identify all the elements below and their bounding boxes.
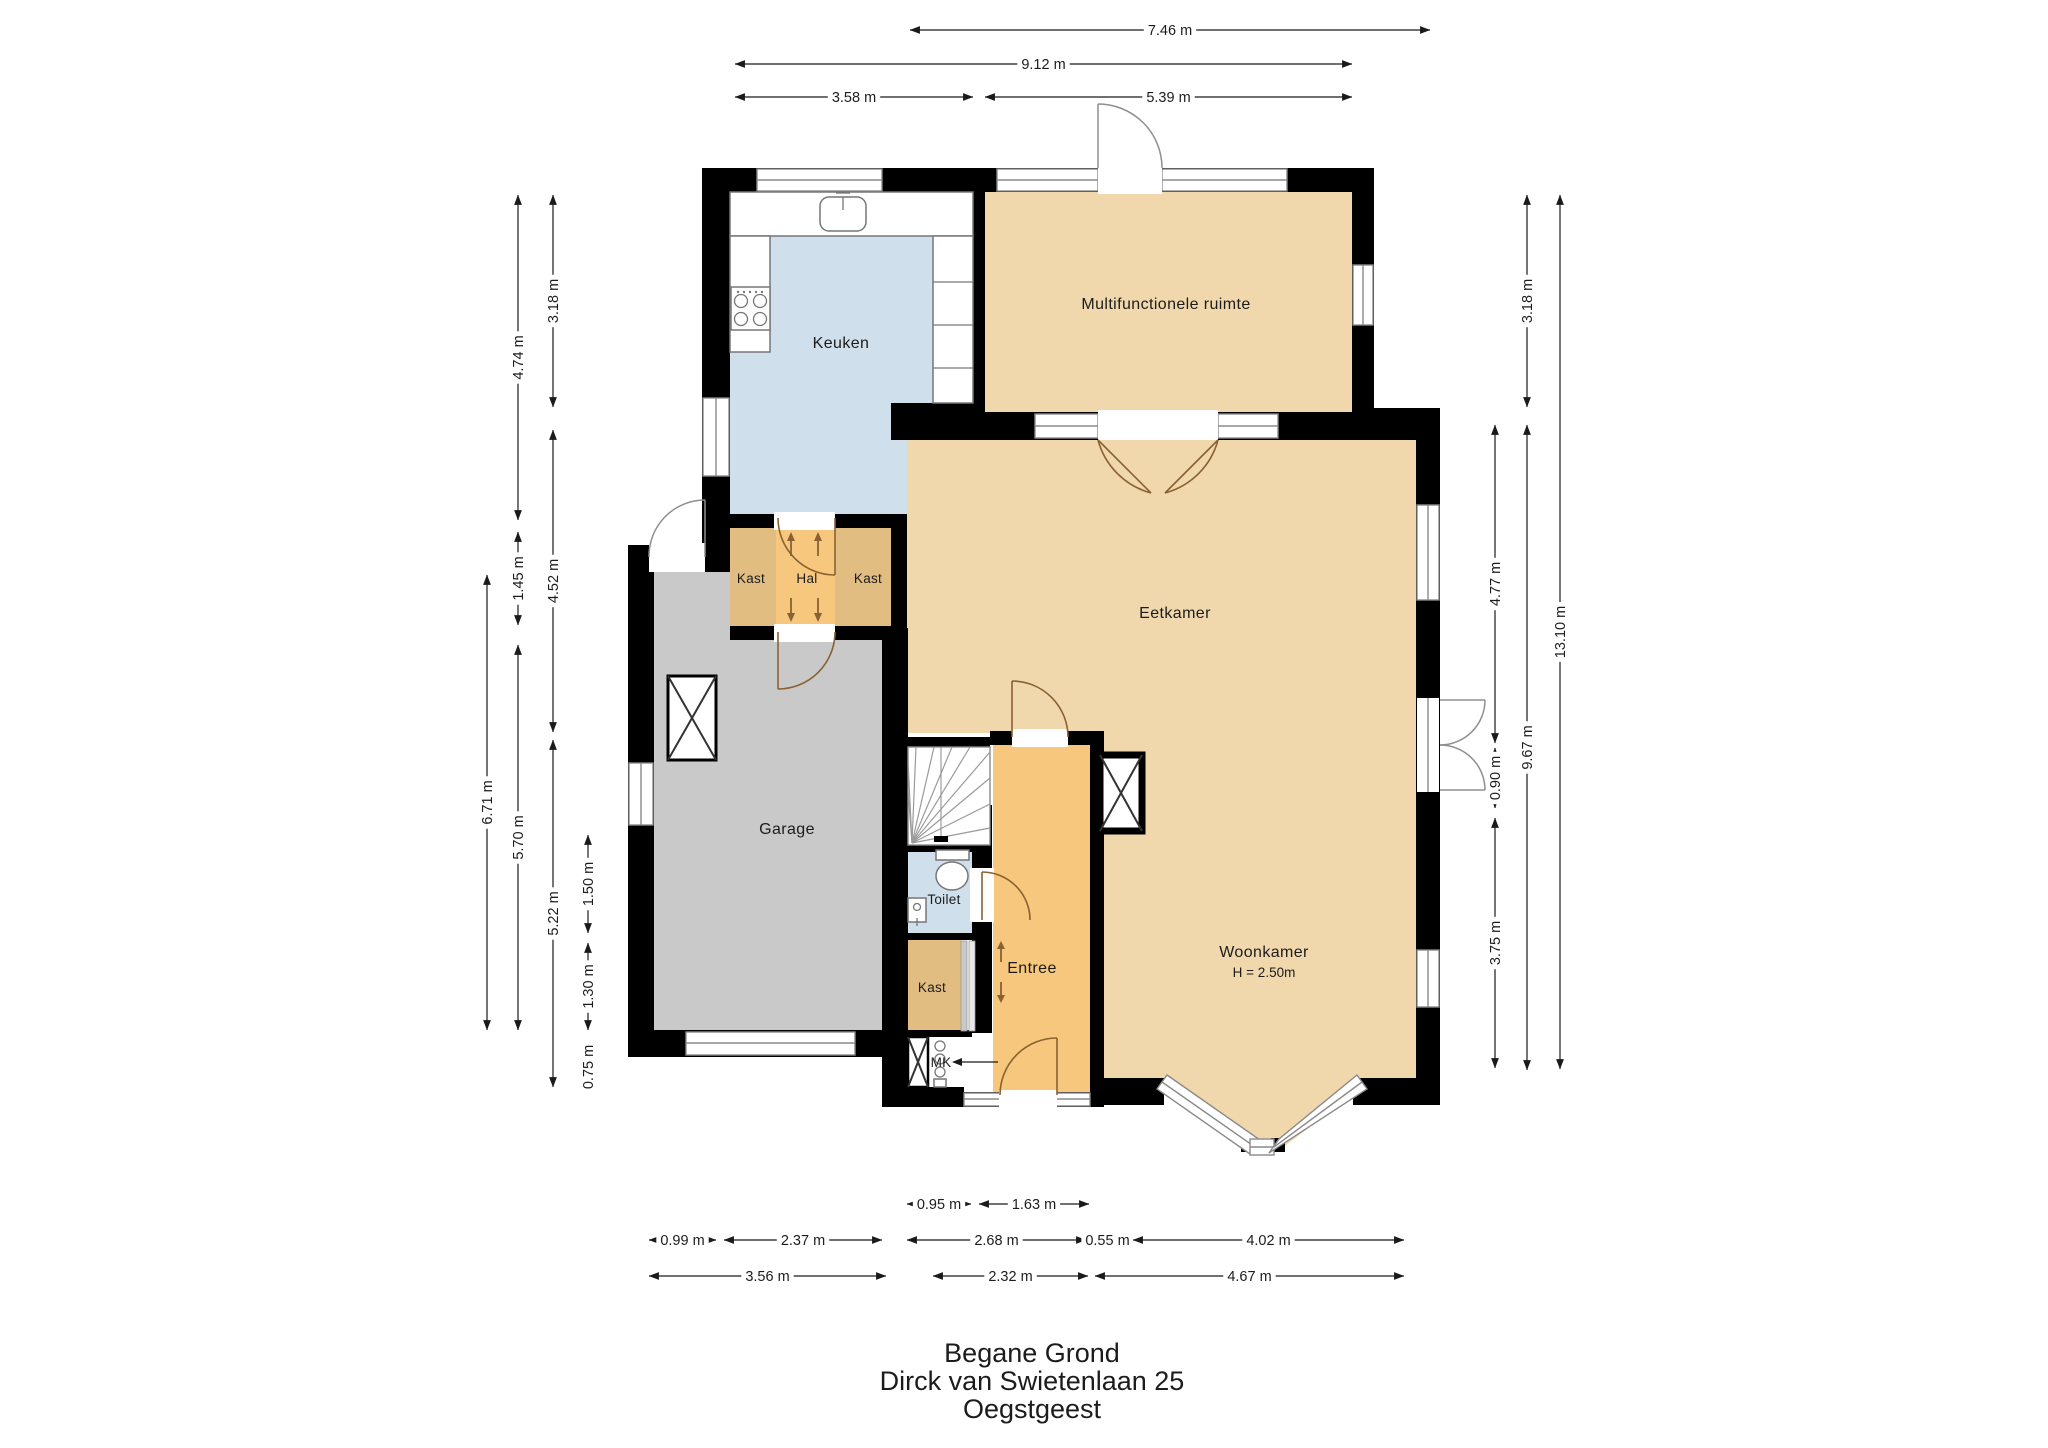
dimension-right-3: 9.67 m bbox=[1519, 425, 1537, 1070]
dimension-right-4-label: 0.90 m bbox=[1488, 756, 1504, 800]
window-multi-right bbox=[1353, 265, 1373, 325]
door-multi-exterior bbox=[1098, 104, 1162, 194]
dimension-left-2-label: 4.52 m bbox=[546, 559, 562, 603]
dimension-right-1: 13.10 m bbox=[1552, 195, 1570, 1069]
toilet-sink-icon bbox=[908, 898, 926, 926]
window-multi-bottom-left bbox=[1035, 414, 1098, 438]
dimension-left-9-label: 0.75 m bbox=[581, 1045, 597, 1089]
dimension-left-7: 1.50 m bbox=[580, 835, 598, 933]
dimension-bottom-0: 0.95 m bbox=[907, 1196, 971, 1214]
dimension-right-1-label: 13.10 m bbox=[1553, 606, 1569, 658]
label-garage: Garage bbox=[759, 821, 815, 838]
title-floor: Begane Grond bbox=[944, 1338, 1120, 1368]
dimension-left-0-label: 3.18 m bbox=[546, 279, 562, 323]
dimension-bottom-5-label: 0.55 m bbox=[1085, 1233, 1129, 1249]
label-kast-left: Kast bbox=[737, 571, 765, 586]
dimension-left-6-label: 5.22 m bbox=[546, 891, 562, 935]
dimension-left-2: 4.52 m bbox=[545, 430, 563, 732]
label-kast-entree: Kast bbox=[918, 980, 946, 995]
label-multifunctionele: Multifunctionele ruimte bbox=[1081, 296, 1250, 313]
dimension-bottom-4: 2.68 m bbox=[907, 1232, 1086, 1250]
dimension-top-2-label: 3.58 m bbox=[832, 90, 876, 106]
window-keuken-left bbox=[703, 398, 729, 476]
dimension-bottom-7-label: 3.56 m bbox=[745, 1269, 789, 1285]
window-woonkamer-right bbox=[1417, 950, 1439, 1007]
dimension-bottom-0-label: 0.95 m bbox=[917, 1197, 961, 1213]
window-keuken-top bbox=[757, 169, 882, 191]
label-kast-right: Kast bbox=[854, 571, 882, 586]
dimension-right-3-label: 9.67 m bbox=[1520, 725, 1536, 769]
label-woonkamer-height: H = 2.50m bbox=[1233, 965, 1296, 980]
dimension-bottom-5: 0.55 m bbox=[1081, 1232, 1133, 1250]
dimension-left-9: 0.75 m bbox=[580, 1041, 598, 1093]
stairs bbox=[908, 747, 990, 845]
dimension-bottom-1-label: 1.63 m bbox=[1012, 1197, 1056, 1213]
dimension-bottom-3: 2.37 m bbox=[724, 1232, 882, 1250]
window-multi-bottom-right bbox=[1218, 414, 1278, 438]
window-eetkamer-right bbox=[1417, 505, 1439, 600]
dimension-top-1: 9.12 m bbox=[735, 56, 1352, 74]
label-toilet: Toilet bbox=[927, 892, 960, 907]
fireplace-shaft-icon bbox=[1100, 755, 1142, 831]
dimension-top-3: 5.39 m bbox=[985, 89, 1352, 107]
dimension-left-3-label: 1.45 m bbox=[511, 556, 527, 600]
floor-plan-page: Keuken Multifunctionele ruimte Kast Hal … bbox=[0, 0, 2048, 1448]
dimension-top-0-label: 7.46 m bbox=[1148, 23, 1192, 39]
dimension-left-3: 1.45 m bbox=[510, 532, 528, 625]
window-multi-top-left bbox=[997, 169, 1098, 191]
dimension-bottom-2-label: 0.99 m bbox=[660, 1233, 704, 1249]
dimension-bottom-4-label: 2.68 m bbox=[974, 1233, 1018, 1249]
dimension-left-7-label: 1.50 m bbox=[581, 862, 597, 906]
room-floor-entree bbox=[993, 745, 1090, 1095]
dimension-bottom-1: 1.63 m bbox=[979, 1196, 1089, 1214]
dimension-bottom-6-label: 4.02 m bbox=[1246, 1233, 1290, 1249]
door-french-right bbox=[1417, 698, 1485, 792]
label-mk: MK bbox=[931, 1055, 952, 1070]
kitchen-sink-icon bbox=[820, 193, 866, 231]
dimension-top-2: 3.58 m bbox=[735, 89, 973, 107]
dimension-bottom-7: 3.56 m bbox=[649, 1268, 886, 1286]
dimension-bottom-2: 0.99 m bbox=[649, 1232, 716, 1250]
dimension-right-4: 0.90 m bbox=[1487, 748, 1505, 808]
dimension-left-4: 6.71 m bbox=[479, 575, 497, 1030]
title-block: Begane Grond Dirck van Swietenlaan 25 Oe… bbox=[880, 1338, 1185, 1424]
dimension-left-5-label: 5.70 m bbox=[511, 815, 527, 859]
dimension-top-3-label: 5.39 m bbox=[1146, 90, 1190, 106]
label-entree: Entree bbox=[1007, 960, 1057, 977]
toilet-icon bbox=[936, 850, 969, 890]
window-garage-bottom bbox=[686, 1032, 855, 1055]
dimension-right-5-label: 3.75 m bbox=[1488, 921, 1504, 965]
dimension-bottom-9: 4.67 m bbox=[1095, 1268, 1404, 1286]
floor-plan-drawing: Keuken Multifunctionele ruimte Kast Hal … bbox=[0, 0, 2048, 1448]
dimension-right-2-label: 4.77 m bbox=[1488, 562, 1504, 606]
title-city: Oegstgeest bbox=[963, 1394, 1102, 1424]
window-garage-left bbox=[629, 763, 653, 825]
dimension-bottom-6: 4.02 m bbox=[1133, 1232, 1404, 1250]
dimension-top-1-label: 9.12 m bbox=[1021, 57, 1065, 73]
dimension-bottom-9-label: 4.67 m bbox=[1227, 1269, 1271, 1285]
title-address: Dirck van Swietenlaan 25 bbox=[880, 1366, 1185, 1396]
dimension-top-0: 7.46 m bbox=[910, 22, 1430, 40]
dimension-left-1-label: 4.74 m bbox=[511, 335, 527, 379]
dimension-left-6: 5.22 m bbox=[545, 740, 563, 1087]
window-multi-top-right bbox=[1162, 169, 1287, 191]
dimension-left-8-label: 1.30 m bbox=[581, 964, 597, 1008]
dimension-left-0: 3.18 m bbox=[545, 195, 563, 407]
dimension-bottom-8-label: 2.32 m bbox=[988, 1269, 1032, 1285]
label-keuken: Keuken bbox=[813, 335, 870, 352]
label-hal: Hal bbox=[796, 571, 817, 586]
label-woonkamer: Woonkamer bbox=[1219, 944, 1309, 961]
dimension-left-1: 4.74 m bbox=[510, 195, 528, 520]
label-eetkamer: Eetkamer bbox=[1139, 605, 1211, 622]
dimension-right-0-label: 3.18 m bbox=[1520, 279, 1536, 323]
dimension-right-0: 3.18 m bbox=[1519, 195, 1537, 407]
dimension-left-8: 1.30 m bbox=[580, 943, 598, 1030]
door-garage-exterior bbox=[649, 500, 705, 572]
dimension-right-5: 3.75 m bbox=[1487, 818, 1505, 1068]
cooktop-icon bbox=[731, 287, 770, 330]
dimension-left-4-label: 6.71 m bbox=[480, 780, 496, 824]
dimension-left-5: 5.70 m bbox=[510, 645, 528, 1030]
dimension-right-2: 4.77 m bbox=[1487, 425, 1505, 743]
garage-skylight-icon bbox=[668, 676, 716, 760]
dimension-bottom-8: 2.32 m bbox=[933, 1268, 1088, 1286]
dimension-bottom-3-label: 2.37 m bbox=[781, 1233, 825, 1249]
